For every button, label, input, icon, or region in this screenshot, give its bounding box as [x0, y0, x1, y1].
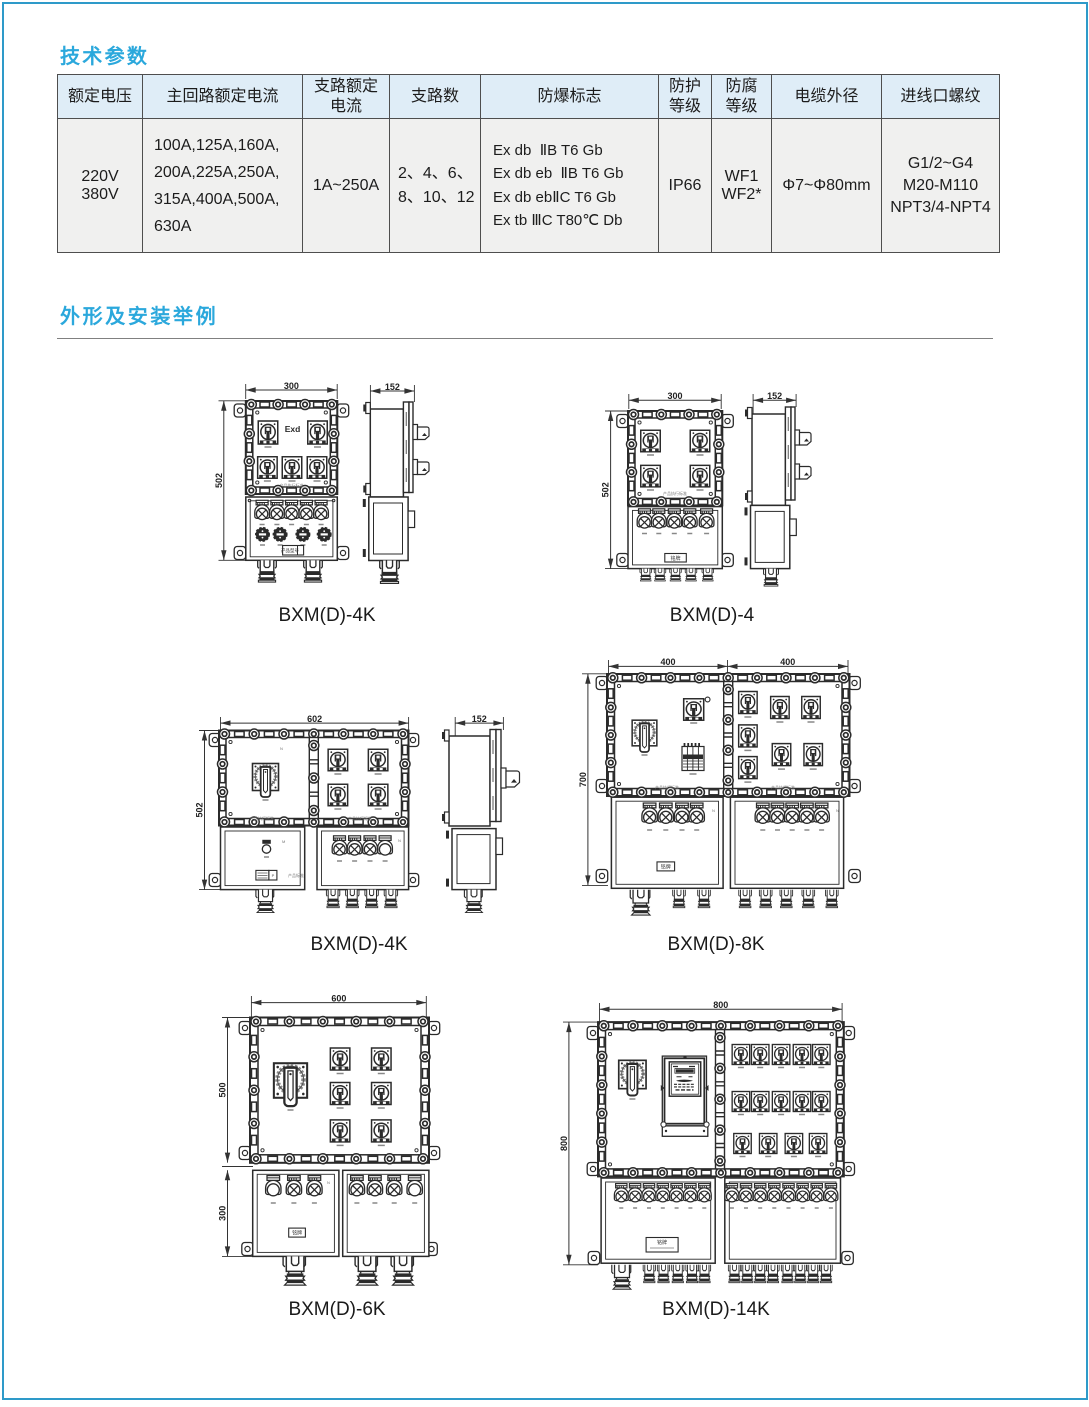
svg-text:800: 800 [559, 1136, 569, 1151]
svg-text:500: 500 [218, 1082, 228, 1097]
svg-text:152: 152 [767, 391, 782, 401]
svg-text:N: N [280, 746, 283, 751]
svg-text:BXM(D)-4K: BXM(D)-4K [278, 605, 375, 626]
svg-text:产品执行标准: 产品执行标准 [655, 784, 679, 790]
svg-text:M: M [282, 839, 285, 844]
svg-text:产品标准: 产品标准 [288, 872, 304, 878]
svg-text:BXM(D)-8K: BXM(D)-8K [667, 934, 764, 955]
svg-text:N: N [708, 1186, 711, 1191]
svg-text:铭牌: 铭牌 [657, 1239, 667, 1246]
svg-text:300: 300 [284, 381, 299, 391]
svg-text:产品执行标准: 产品执行标准 [663, 490, 687, 496]
svg-text:铭牌: 铭牌 [670, 555, 680, 562]
svg-text:700: 700 [578, 772, 588, 787]
svg-text:600: 600 [331, 993, 346, 1003]
svg-text:602: 602 [307, 714, 322, 724]
svg-text:400: 400 [660, 657, 675, 667]
svg-text:N: N [398, 838, 401, 843]
svg-text:产品执行标准: 产品执行标准 [280, 482, 304, 488]
svg-text:P: P [272, 873, 275, 878]
svg-text:Exd: Exd [285, 424, 301, 434]
svg-text:300: 300 [218, 1206, 228, 1221]
svg-text:铭牌: 铭牌 [661, 863, 671, 870]
svg-text:152: 152 [385, 382, 400, 392]
svg-text:400: 400 [780, 657, 795, 667]
svg-text:502: 502 [601, 482, 611, 497]
svg-text:N: N [712, 808, 715, 813]
svg-text:152: 152 [472, 714, 487, 724]
svg-text:BXM(D)-6K: BXM(D)-6K [288, 1299, 385, 1320]
svg-text:502: 502 [195, 802, 205, 817]
svg-text:N: N [327, 1180, 330, 1185]
svg-text:产品执行标准: 产品执行标准 [250, 815, 274, 821]
svg-text:800: 800 [713, 1000, 728, 1010]
svg-text:300: 300 [667, 391, 682, 401]
svg-text:N: N [836, 808, 839, 813]
svg-text:BXM(D)-4K: BXM(D)-4K [310, 934, 407, 955]
svg-text:铭牌: 铭牌 [292, 1230, 302, 1237]
svg-text:502: 502 [214, 473, 224, 488]
svg-text:产品执行标准: 产品执行标准 [348, 815, 372, 821]
svg-text:BXM(D)-14K: BXM(D)-14K [662, 1299, 770, 1320]
svg-text:产品执行标准: 产品执行标准 [771, 784, 795, 790]
svg-text:BXM(D)-4: BXM(D)-4 [670, 605, 755, 626]
svg-text:产品型号: 产品型号 [281, 547, 299, 554]
